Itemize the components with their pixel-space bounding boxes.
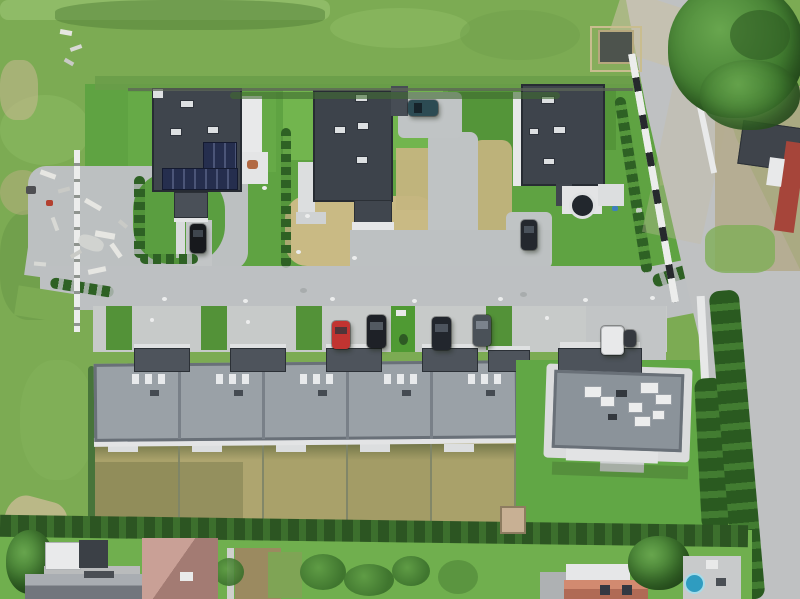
manhole-2 xyxy=(520,292,527,297)
hvac-unit-2 xyxy=(600,396,615,407)
rowhouse-skylights-3 xyxy=(300,374,338,384)
skylight-c2 xyxy=(553,126,566,134)
rowhouse-vent-2 xyxy=(234,390,243,396)
house-br-skylight-1 xyxy=(600,585,610,595)
entry-wall-house-b xyxy=(352,222,394,230)
hvac-unit-7 xyxy=(652,410,665,420)
entry-house-b xyxy=(354,200,392,224)
veg-plot-2 xyxy=(268,552,302,598)
terrace-tab-4 xyxy=(360,444,390,452)
garden-fence-3 xyxy=(346,444,348,528)
strip-bush xyxy=(399,334,408,345)
car-teal-glass xyxy=(414,103,422,113)
roof-house-b xyxy=(313,90,393,202)
house-br-skylight-2 xyxy=(622,585,632,595)
skylight-b3 xyxy=(357,122,369,130)
grass-patch-left-3 xyxy=(20,360,95,480)
patio-table-house-a xyxy=(247,160,258,169)
garden-fence-1 xyxy=(178,444,180,528)
road-dot-3 xyxy=(330,297,335,301)
trailer-dark xyxy=(624,330,636,347)
house-br-gray-part xyxy=(540,572,566,599)
tree-bottom-right xyxy=(628,536,690,590)
car-red xyxy=(332,321,350,349)
drive-dot-3 xyxy=(352,256,357,260)
neighbor-grass-right xyxy=(705,225,775,273)
rowhouse-vent-4 xyxy=(402,390,411,396)
bush-bottom-5 xyxy=(438,560,478,594)
car-black-1-glass xyxy=(370,322,383,330)
driveway-house-b-front xyxy=(350,230,550,270)
debris-red-item xyxy=(46,200,53,206)
car-black-2-glass xyxy=(435,324,448,332)
skylight-b4 xyxy=(356,156,368,164)
rowhouse-skylights-5 xyxy=(468,374,506,384)
garden-fence-2 xyxy=(262,444,264,528)
debris-dark-item xyxy=(26,186,36,194)
bush-bottom-1 xyxy=(300,554,346,590)
hvac-unit-4 xyxy=(655,394,672,405)
drive-dot-4 xyxy=(296,250,301,254)
roof-house-c xyxy=(521,84,605,186)
car-house-a xyxy=(190,224,206,253)
shed-tan xyxy=(500,506,526,534)
rowhouse-seam-3 xyxy=(346,364,349,439)
road-dot-6 xyxy=(583,298,588,302)
road-dot-7 xyxy=(650,296,655,300)
road-dot-1 xyxy=(162,297,167,301)
grass-patch-top-mid xyxy=(330,8,470,48)
car-teal xyxy=(408,100,438,116)
house-gray-ridge-item xyxy=(84,571,114,578)
garage-house-a xyxy=(174,192,208,218)
roof-vent-dark-2 xyxy=(608,414,617,420)
parking-strip-2 xyxy=(201,306,227,350)
rowhouse-vent-3 xyxy=(318,390,327,396)
rowhouse-skylights-4 xyxy=(384,374,422,384)
skylight-c3 xyxy=(529,128,539,135)
skylight-b2 xyxy=(334,126,346,134)
fence-top-boundary xyxy=(128,88,633,91)
parking-dot-3 xyxy=(545,316,549,320)
scrub-top xyxy=(55,0,325,30)
tree-canopy-top-right-2 xyxy=(700,60,800,130)
kiddie-pool xyxy=(684,573,705,594)
skylight-a1 xyxy=(180,100,194,108)
garden-toy-blue xyxy=(612,206,618,211)
main-road xyxy=(40,266,705,310)
garage-row-3 xyxy=(326,348,382,372)
dry-lawn-house-b-2 xyxy=(396,148,430,210)
terrace-tab-5 xyxy=(444,444,474,452)
hedge-between-a-b xyxy=(281,128,291,268)
hvac-unit-6 xyxy=(634,416,651,427)
hvac-unit-5 xyxy=(628,402,643,413)
drive-dot-2 xyxy=(305,214,310,218)
house-pink-roof xyxy=(142,538,218,599)
car-gray-glass xyxy=(476,321,488,329)
rowhouse-seam-4 xyxy=(430,364,433,439)
truck-box-dark xyxy=(79,540,108,568)
parking-strip-1 xyxy=(106,306,132,350)
skylight-a2 xyxy=(170,128,182,136)
parking-dot-1 xyxy=(150,318,154,322)
bush-bottom-3 xyxy=(392,556,430,586)
rowhouse-skylights-1 xyxy=(132,374,170,384)
hedge-top-boundary xyxy=(230,92,560,99)
car-house-c-glass xyxy=(524,226,534,233)
car-house-a-glass xyxy=(193,230,203,237)
rowhouse-seam-1 xyxy=(178,364,181,439)
garage-row-4 xyxy=(422,348,478,372)
steps-house-b xyxy=(296,212,326,224)
parking-dot-2 xyxy=(246,320,250,324)
garage-row-2 xyxy=(230,348,286,372)
rowhouse-roof xyxy=(94,360,519,442)
patio-item-white xyxy=(706,560,718,569)
car-black-1 xyxy=(367,315,386,348)
solar-array-2 xyxy=(162,168,238,190)
car-house-c xyxy=(521,220,537,250)
skylight-c4 xyxy=(543,158,555,165)
bush-bottom-2 xyxy=(344,564,394,596)
road-dot-4 xyxy=(412,299,417,303)
house-pink-white-dot xyxy=(180,572,193,581)
car-black-2 xyxy=(432,317,451,350)
road-dot-5 xyxy=(498,297,503,301)
patio-item-dark xyxy=(716,578,726,586)
grass-patch-top-right xyxy=(460,10,580,60)
rowhouse-seam-2 xyxy=(262,364,265,439)
manhole-1 xyxy=(300,288,307,293)
hot-tub xyxy=(569,192,596,219)
garage-row-1 xyxy=(134,348,190,372)
utility-box xyxy=(396,310,406,316)
dirt-top-left xyxy=(0,60,38,120)
rowhouse-vent-5 xyxy=(486,390,495,396)
rowhouse-vent-1 xyxy=(150,390,159,396)
car-red-glass xyxy=(335,327,347,334)
road-dot-2 xyxy=(243,299,248,303)
rowhouse-skylights-2 xyxy=(216,374,254,384)
drive-dot-1 xyxy=(262,186,267,190)
skylight-a3 xyxy=(207,126,219,134)
walkway-house-a xyxy=(176,222,185,258)
car-gray xyxy=(473,315,491,346)
hvac-unit-3 xyxy=(640,382,659,394)
hedge-house-a-south xyxy=(140,254,198,264)
roof-vent-dark-1 xyxy=(616,390,627,397)
garden-fence-4 xyxy=(430,444,432,528)
van-white xyxy=(601,326,624,355)
parking-strip-3 xyxy=(296,306,322,350)
bush-bottom-4 xyxy=(214,558,244,586)
aerial-photo xyxy=(0,0,800,599)
tree-canopy-dark-spot xyxy=(730,10,790,60)
truck-cab-white xyxy=(45,542,81,570)
patio-house-c xyxy=(598,184,624,206)
hedge-arc-house-a xyxy=(134,176,145,258)
